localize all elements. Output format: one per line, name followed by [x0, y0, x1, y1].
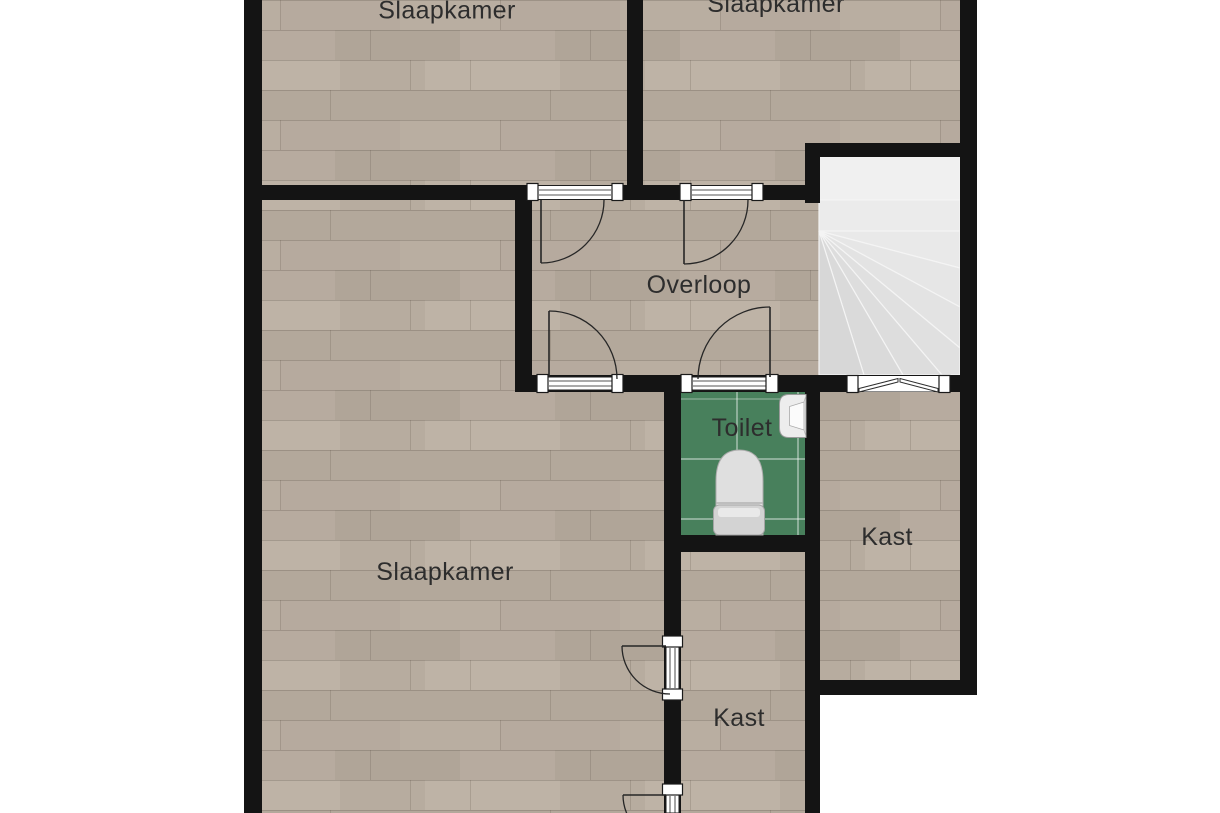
room-label-overloop: Overloop: [647, 271, 752, 299]
door-threshold: [666, 647, 679, 689]
sink-basin: [790, 402, 805, 430]
room-label-slaapkamer-top-right: Slaapkamer: [707, 0, 844, 18]
staircase: [819, 157, 960, 375]
room-label-slaapkamer-large: Slaapkamer: [376, 558, 513, 586]
wall-segment: [805, 143, 820, 203]
room-label-kast-right: Kast: [861, 523, 913, 551]
floor-slaapkamer-top-left: [262, 0, 627, 192]
room-label-slaapkamer-top-left: Slaapkamer: [378, 0, 515, 25]
door-jamb: [939, 376, 950, 393]
wall-segment: [664, 375, 681, 813]
door-jamb: [612, 184, 623, 201]
door-threshold: [692, 377, 767, 390]
wall-segment: [515, 185, 532, 380]
door-threshold: [691, 186, 753, 200]
toilet-cistern-highlight: [718, 508, 760, 517]
sink-icon: [780, 395, 807, 438]
wall-segment: [805, 680, 977, 695]
stair-tread: [819, 157, 960, 200]
stair-opening: [847, 376, 950, 393]
door-jamb: [527, 184, 538, 201]
door-jamb: [680, 184, 691, 201]
wall-segment: [960, 0, 977, 695]
door-threshold: [666, 795, 679, 813]
floor-slaapkamer-large: [262, 200, 664, 813]
wall-segment: [244, 0, 262, 813]
toilet-icon: [714, 450, 765, 535]
door-jamb: [766, 375, 778, 393]
stair-tread: [819, 200, 960, 231]
floor-plan-page: Slaapkamer Slaapkamer Overloop Toilet Ka…: [0, 0, 1220, 813]
floor-plan: Slaapkamer Slaapkamer Overloop Toilet Ka…: [0, 0, 1220, 813]
room-label-toilet: Toilet: [712, 414, 773, 442]
wall-segment: [805, 143, 962, 157]
door-jamb: [663, 784, 683, 795]
floor-slaapkamer-top-right: [643, 0, 960, 143]
wall-segment: [627, 0, 643, 192]
door-jamb: [537, 375, 548, 393]
wall-segment: [805, 375, 820, 813]
door-jamb: [663, 689, 683, 700]
door-jamb: [847, 376, 858, 393]
floor-kast-bottom: [681, 552, 805, 813]
room-label-kast-bottom: Kast: [713, 704, 765, 732]
door-jamb: [681, 375, 692, 393]
door-jamb: [752, 184, 763, 201]
door-threshold: [548, 377, 613, 390]
door-threshold: [538, 186, 612, 200]
wall-segment: [664, 535, 820, 552]
